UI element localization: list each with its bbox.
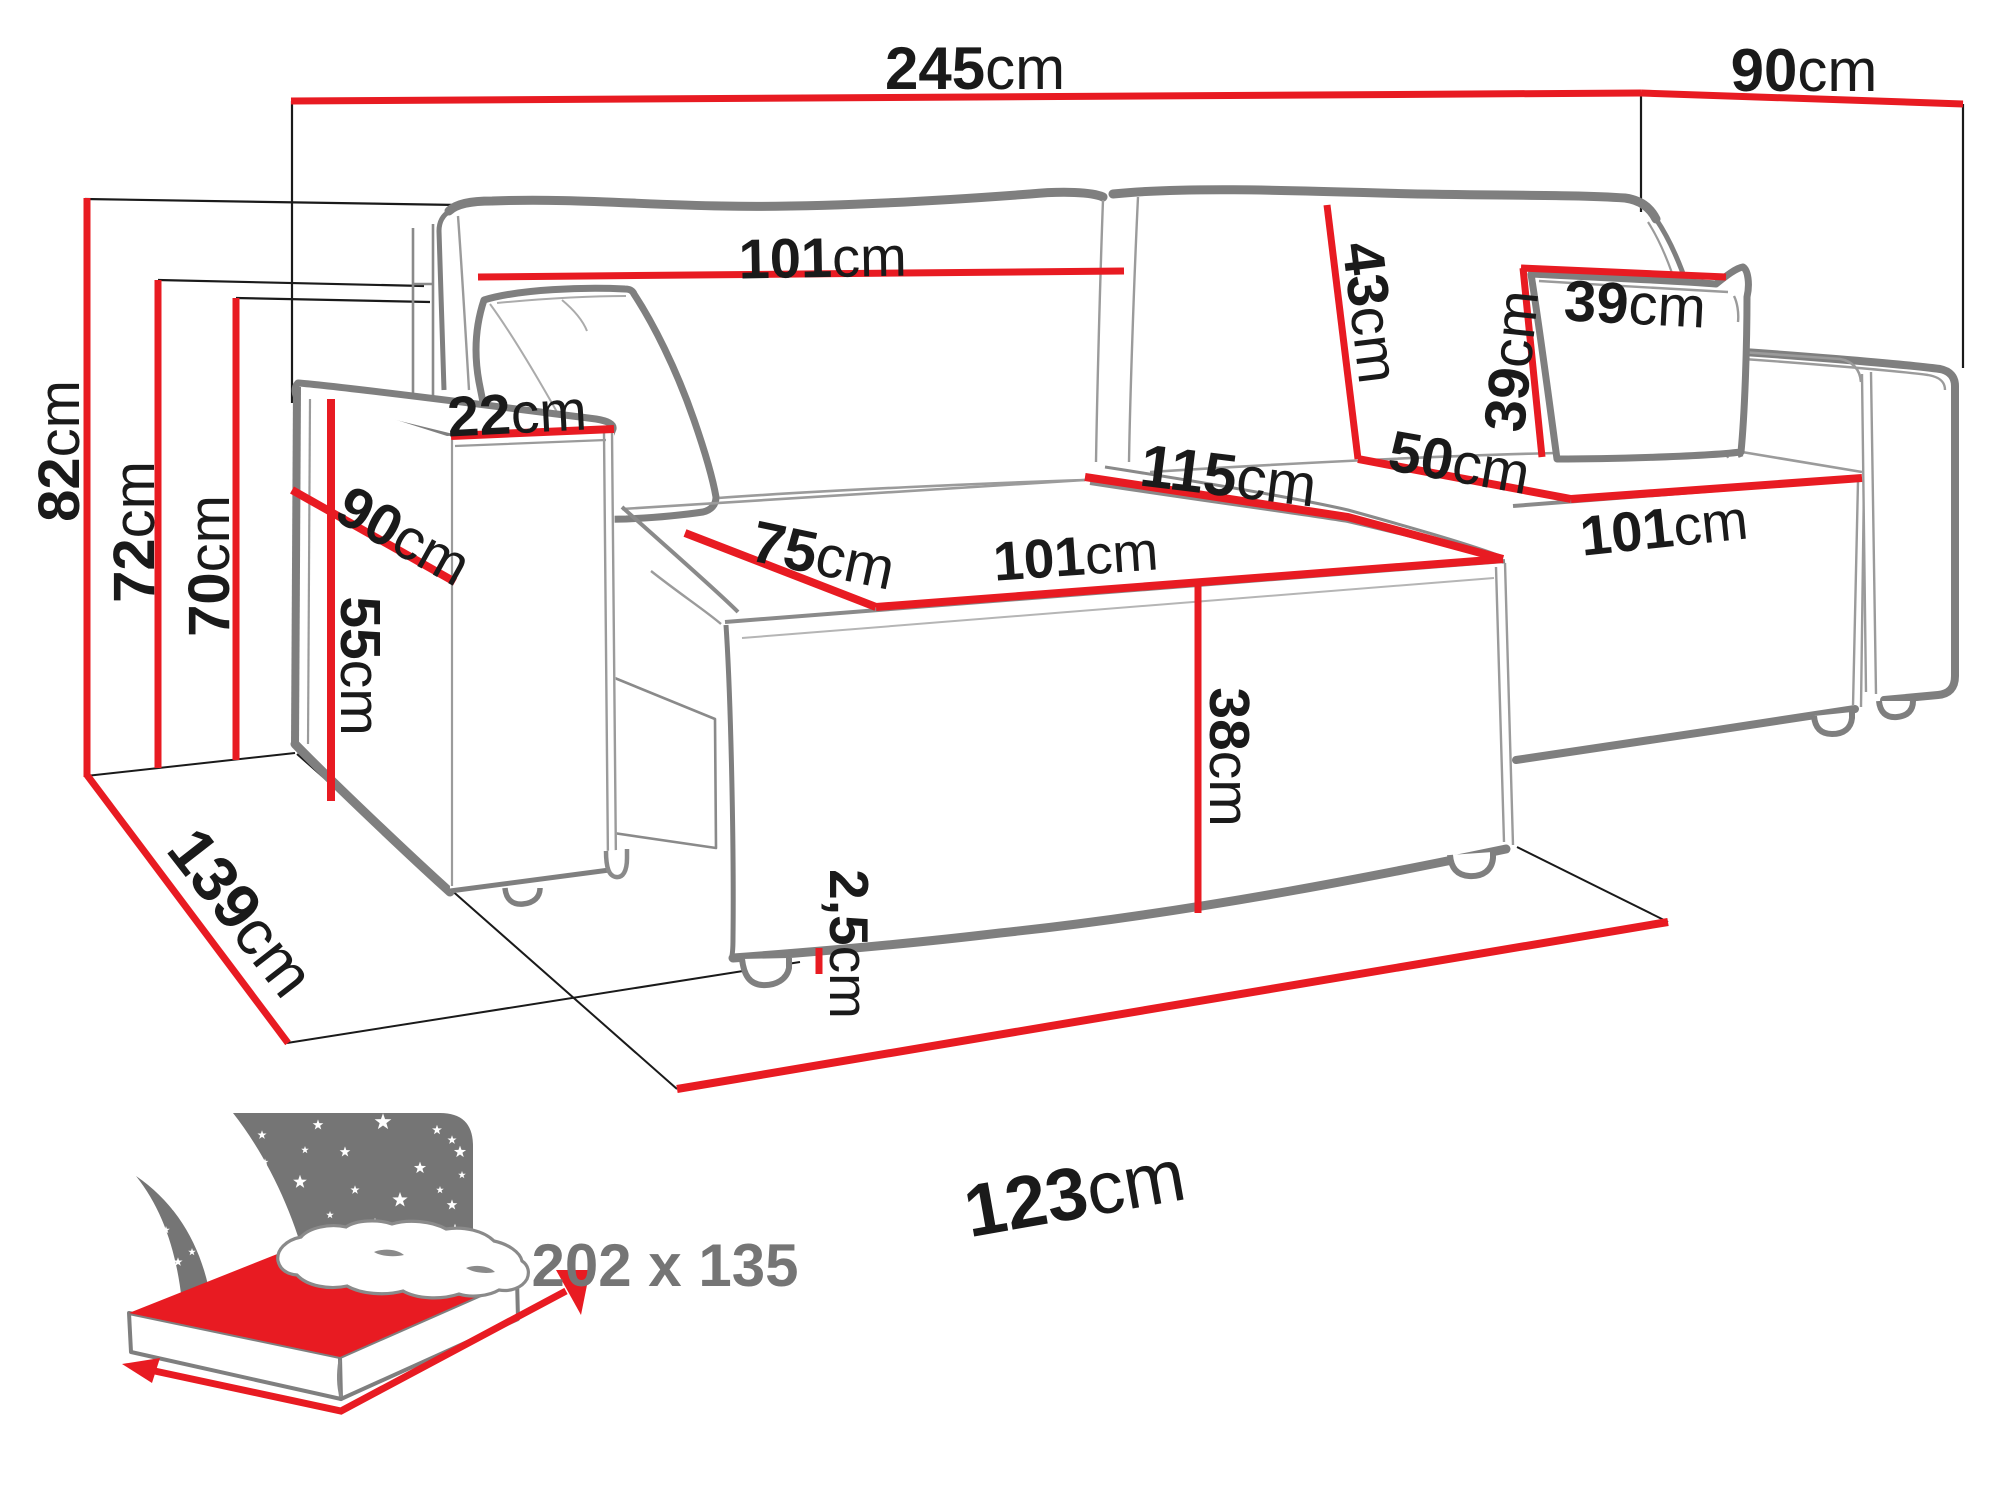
svg-text:72cm: 72cm — [102, 461, 167, 603]
svg-text:22cm: 22cm — [446, 378, 589, 449]
svg-text:39cm: 39cm — [1562, 268, 1707, 340]
svg-text:82cm: 82cm — [27, 380, 92, 522]
svg-text:245cm: 245cm — [885, 35, 1065, 102]
svg-text:123cm: 123cm — [958, 1133, 1191, 1253]
svg-text:115cm: 115cm — [1137, 432, 1321, 520]
svg-text:38cm: 38cm — [1197, 687, 1261, 826]
svg-text:101cm: 101cm — [738, 225, 907, 291]
svg-text:101cm: 101cm — [991, 519, 1160, 592]
svg-text:70cm: 70cm — [177, 495, 242, 637]
svg-text:43cm: 43cm — [1329, 238, 1411, 387]
svg-text:2,5cm: 2,5cm — [818, 869, 880, 1019]
svg-text:75cm: 75cm — [746, 508, 901, 603]
svg-text:202 x 135: 202 x 135 — [532, 1232, 799, 1299]
svg-text:90cm: 90cm — [1731, 37, 1878, 104]
svg-text:55cm: 55cm — [328, 596, 392, 735]
